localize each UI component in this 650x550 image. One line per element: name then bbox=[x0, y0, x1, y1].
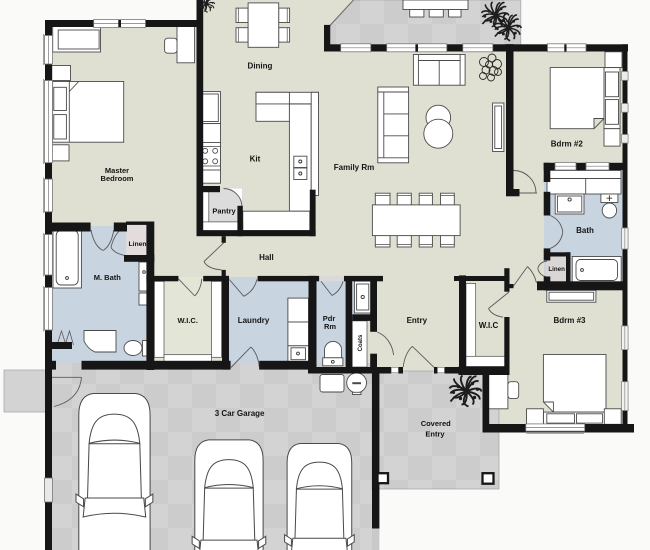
svg-text:Dining: Dining bbox=[248, 62, 273, 71]
svg-text:Hall: Hall bbox=[259, 253, 274, 262]
svg-text:Bath: Bath bbox=[576, 226, 594, 235]
svg-text:Laundry: Laundry bbox=[238, 316, 270, 325]
svg-text:Rm: Rm bbox=[324, 322, 336, 331]
svg-text:Kit: Kit bbox=[250, 155, 261, 164]
svg-text:Linen: Linen bbox=[128, 241, 146, 248]
svg-text:3 Car Garage: 3 Car Garage bbox=[215, 409, 265, 418]
svg-text:M. Bath: M. Bath bbox=[94, 273, 122, 282]
svg-text:Family Rm: Family Rm bbox=[334, 163, 374, 172]
svg-text:W.I.C: W.I.C bbox=[479, 321, 499, 330]
svg-text:Entry: Entry bbox=[407, 316, 428, 325]
svg-text:W.I.C.: W.I.C. bbox=[177, 316, 197, 325]
svg-text:Covered: Covered bbox=[421, 419, 451, 428]
svg-text:Entry: Entry bbox=[425, 430, 445, 439]
svg-text:Bdrm #2: Bdrm #2 bbox=[551, 140, 584, 149]
svg-text:Linen: Linen bbox=[548, 266, 565, 273]
svg-text:Bdrm #3: Bdrm #3 bbox=[553, 316, 586, 325]
svg-text:Pantry: Pantry bbox=[212, 206, 236, 215]
svg-text:Coats: Coats bbox=[358, 334, 364, 351]
svg-text:Bedroom: Bedroom bbox=[101, 174, 134, 183]
